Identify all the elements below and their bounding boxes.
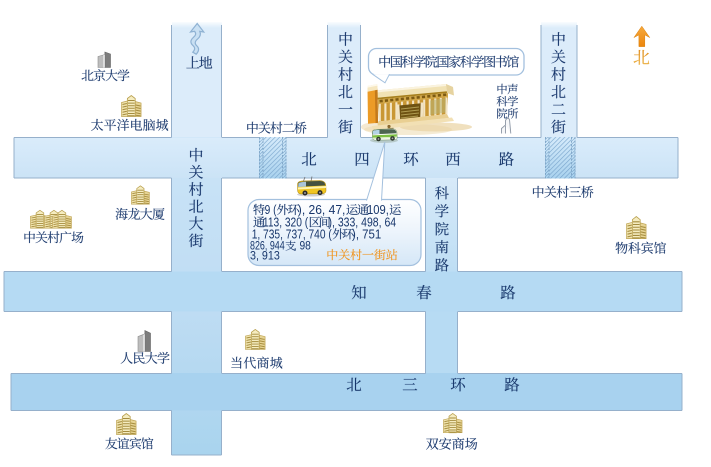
svg-text:1, 735, 737, 740 (: 1, 735, 737, 740 ( bbox=[252, 227, 333, 242]
svg-text:3, 913: 3, 913 bbox=[250, 250, 280, 262]
svg-text:, 98: , 98 bbox=[294, 240, 311, 252]
svg-text:), 751: ), 751 bbox=[352, 227, 381, 242]
